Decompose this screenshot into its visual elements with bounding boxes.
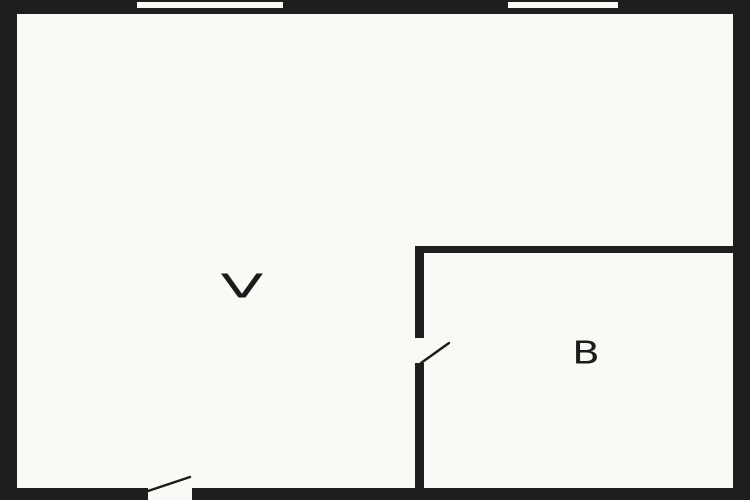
window-top-right bbox=[508, 2, 618, 8]
room-label-b: B bbox=[572, 339, 600, 370]
room-b-wall-vertical-upper bbox=[415, 246, 424, 338]
floor-plan: V B bbox=[0, 0, 750, 500]
exterior-door-opening bbox=[148, 488, 192, 500]
window-top-left bbox=[137, 2, 283, 8]
room-b-wall-horizontal bbox=[415, 246, 733, 253]
room-b-wall-vertical-lower bbox=[415, 363, 424, 488]
room-label-v: V bbox=[221, 270, 264, 303]
